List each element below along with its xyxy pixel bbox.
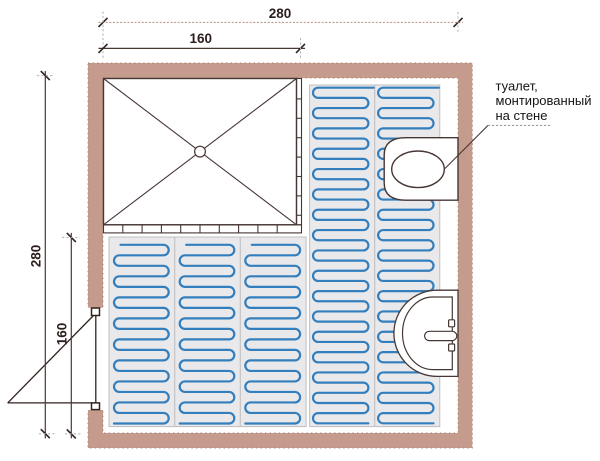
svg-text:280: 280 <box>28 245 43 268</box>
svg-text:160: 160 <box>190 31 213 46</box>
svg-text:монтированный: монтированный <box>496 93 592 108</box>
svg-text:280: 280 <box>269 6 292 21</box>
svg-text:туалет,: туалет, <box>496 79 538 94</box>
svg-text:на стене: на стене <box>496 108 548 123</box>
svg-text:160: 160 <box>55 323 70 346</box>
